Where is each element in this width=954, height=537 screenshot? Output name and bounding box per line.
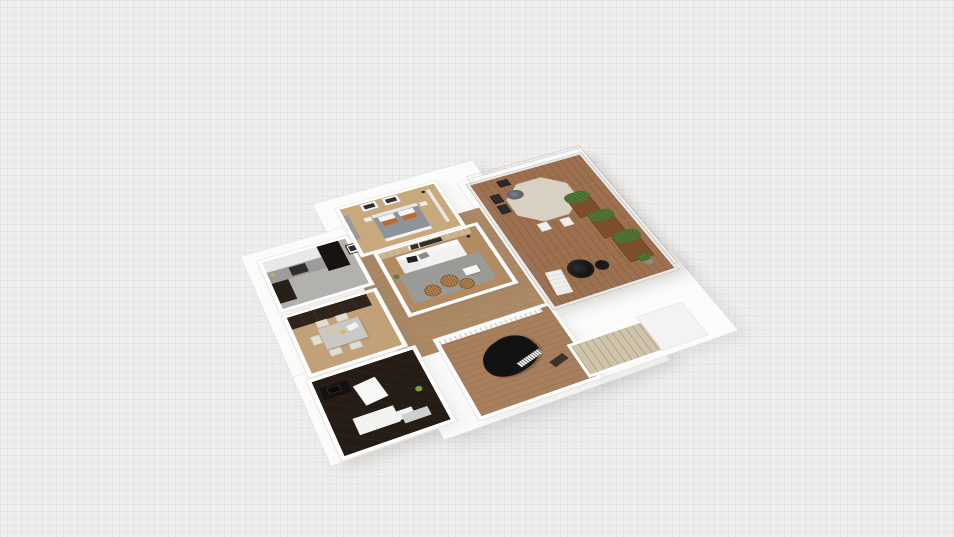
monitor [327,385,340,394]
floor-lamp [466,235,471,238]
kitchen-lower-cabinets [272,279,298,304]
frame-art [385,197,397,203]
nightstand [419,201,428,207]
floor-lamp [421,190,426,193]
picture-frame [382,195,401,206]
nightstand [363,217,372,223]
yellow-plate [340,329,347,334]
double-bed [371,203,432,242]
floorplan-viewport[interactable] [0,0,954,537]
picture-frame [360,201,379,212]
tray [346,322,359,331]
frame-art [363,203,376,210]
cutting-board [324,327,338,335]
